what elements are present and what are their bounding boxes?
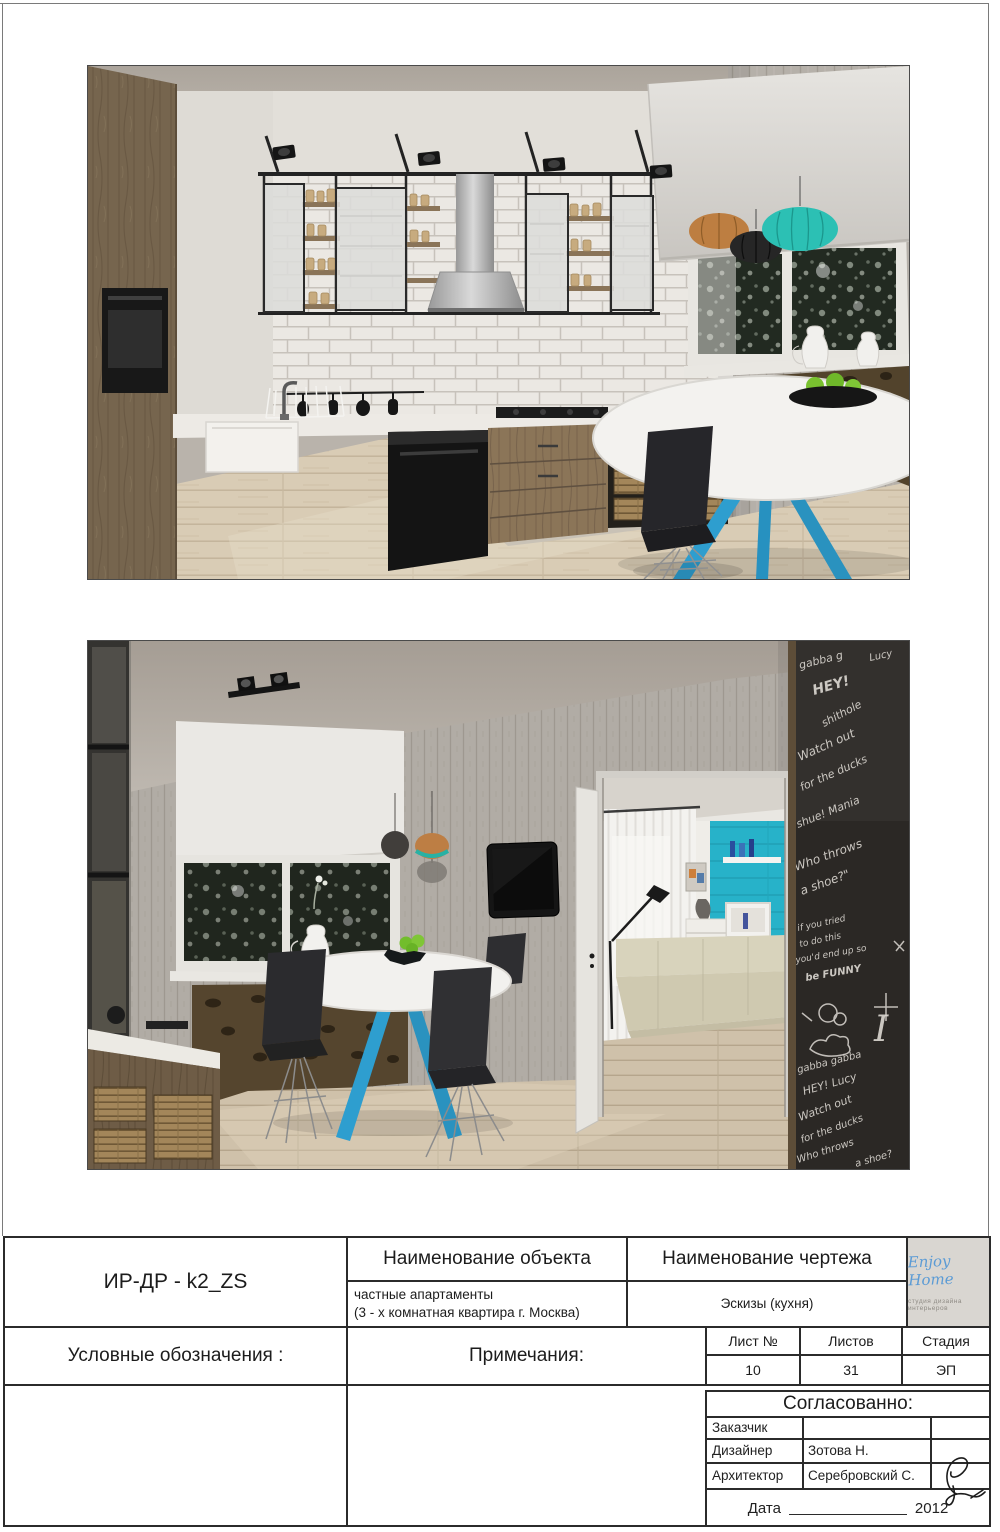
kitchen-render-2: gabba g Lucy HEY! shithole Watch out for… <box>87 640 910 1170</box>
notes-label: Примечания: <box>348 1328 705 1384</box>
studio-logo: Enjoy Home студия дизайна интерьеров <box>908 1238 989 1326</box>
approved-header: Согласованно: <box>707 1392 989 1416</box>
chalkboard-wall: gabba g Lucy HEY! shithole Watch out for… <box>788 641 909 1169</box>
stage-value: ЭП <box>903 1356 989 1384</box>
doc-code-text: ИР-ДР - k2_ZS <box>104 1270 248 1294</box>
designer-value: Зотова Н. <box>802 1443 930 1458</box>
frame-left-line <box>2 3 3 1236</box>
object-line1: частные апартаменты <box>354 1286 580 1304</box>
pendant-sphere-smoke <box>417 861 447 883</box>
base-cabinet-drawers <box>488 424 608 544</box>
sheets-total-header-text: Листов <box>828 1333 874 1349</box>
sheets-total-header: Листов <box>801 1328 901 1354</box>
drawing-header-text: Наименование чертежа <box>662 1248 872 1270</box>
wicker-basket <box>94 1087 146 1121</box>
legend-label-text: Условные обозначения : <box>68 1345 284 1367</box>
notes-label-text: Примечания: <box>469 1345 584 1367</box>
sheer-curtain <box>698 254 736 354</box>
drawing-sheet: gabba g Lucy HEY! shithole Watch out for… <box>0 0 1000 1532</box>
pendant-sphere-gray <box>381 831 409 859</box>
farmhouse-sink <box>206 422 298 472</box>
door <box>576 787 598 1133</box>
logo-wordmark: Enjoy Home <box>907 1251 989 1290</box>
stage-header-text: Стадия <box>922 1333 970 1349</box>
frame-right-line <box>988 3 989 1236</box>
kettle <box>107 1006 125 1024</box>
dishwasher <box>388 430 488 571</box>
sheet-no-header-text: Лист № <box>728 1333 777 1349</box>
approval-block: Согласованно: Заказчик Дизайнер Зотова Н… <box>705 1390 989 1525</box>
title-block: ИР-ДР - k2_ZS Наименование объекта частн… <box>3 1236 991 1527</box>
object-name-header: Наименование объекта <box>348 1238 626 1280</box>
sheet-no-header: Лист № <box>707 1328 799 1354</box>
box-shelf <box>726 903 770 937</box>
client-label: Заказчик <box>707 1420 802 1435</box>
cooktop <box>146 1021 188 1029</box>
pendant-lamp-teal <box>762 207 838 251</box>
divider <box>5 1384 989 1386</box>
date-year: 2012 <box>915 1500 948 1517</box>
doc-code: ИР-ДР - k2_ZS <box>5 1238 346 1326</box>
sheet-no-value-text: 10 <box>745 1362 761 1378</box>
kitchen-render-1 <box>87 65 910 580</box>
pendant-sphere-orange <box>415 833 449 859</box>
drawing-value-text: Эскизы (кухня) <box>721 1295 814 1313</box>
object-line2: (3 - х комнатная квартира г. Москва) <box>354 1304 580 1322</box>
legend-label: Условные обозначения : <box>5 1328 346 1384</box>
date-blank-line <box>789 1501 907 1515</box>
doorway-living-room <box>601 776 788 1116</box>
wicker-basket <box>154 1095 212 1159</box>
sheets-total-value-text: 31 <box>843 1362 859 1378</box>
date-row: Дата 2012 <box>707 1490 989 1526</box>
wall-tv <box>487 842 560 918</box>
approved-header-text: Согласованно: <box>783 1393 913 1415</box>
architect-label: Архитектор <box>707 1468 802 1483</box>
designer-label: Дизайнер <box>707 1443 802 1458</box>
approval-row-client: Заказчик <box>707 1417 989 1438</box>
architect-value: Серебровский С. <box>802 1468 930 1483</box>
gas-cooktop <box>496 407 608 418</box>
drawing-name-header: Наименование чертежа <box>628 1238 906 1280</box>
stage-header: Стадия <box>903 1328 989 1354</box>
frame-top-line <box>0 3 989 4</box>
roman-blind <box>176 721 404 869</box>
drawing-name-value: Эскизы (кухня) <box>628 1282 906 1326</box>
sheet-no-value: 10 <box>707 1356 799 1384</box>
artwork <box>686 863 706 891</box>
logo-tagline: студия дизайна интерьеров <box>908 1298 989 1312</box>
object-name-value: частные апартаменты (3 - х комнатная ква… <box>348 1282 632 1326</box>
wicker-basket <box>94 1129 146 1163</box>
glazed-partition <box>88 641 130 1049</box>
sheets-total-value: 31 <box>801 1356 901 1384</box>
sink-wall <box>173 91 273 436</box>
object-header-text: Наименование объекта <box>383 1248 591 1270</box>
stage-value-text: ЭП <box>936 1362 956 1378</box>
built-in-oven <box>102 288 168 393</box>
date-label: Дата <box>748 1500 781 1517</box>
